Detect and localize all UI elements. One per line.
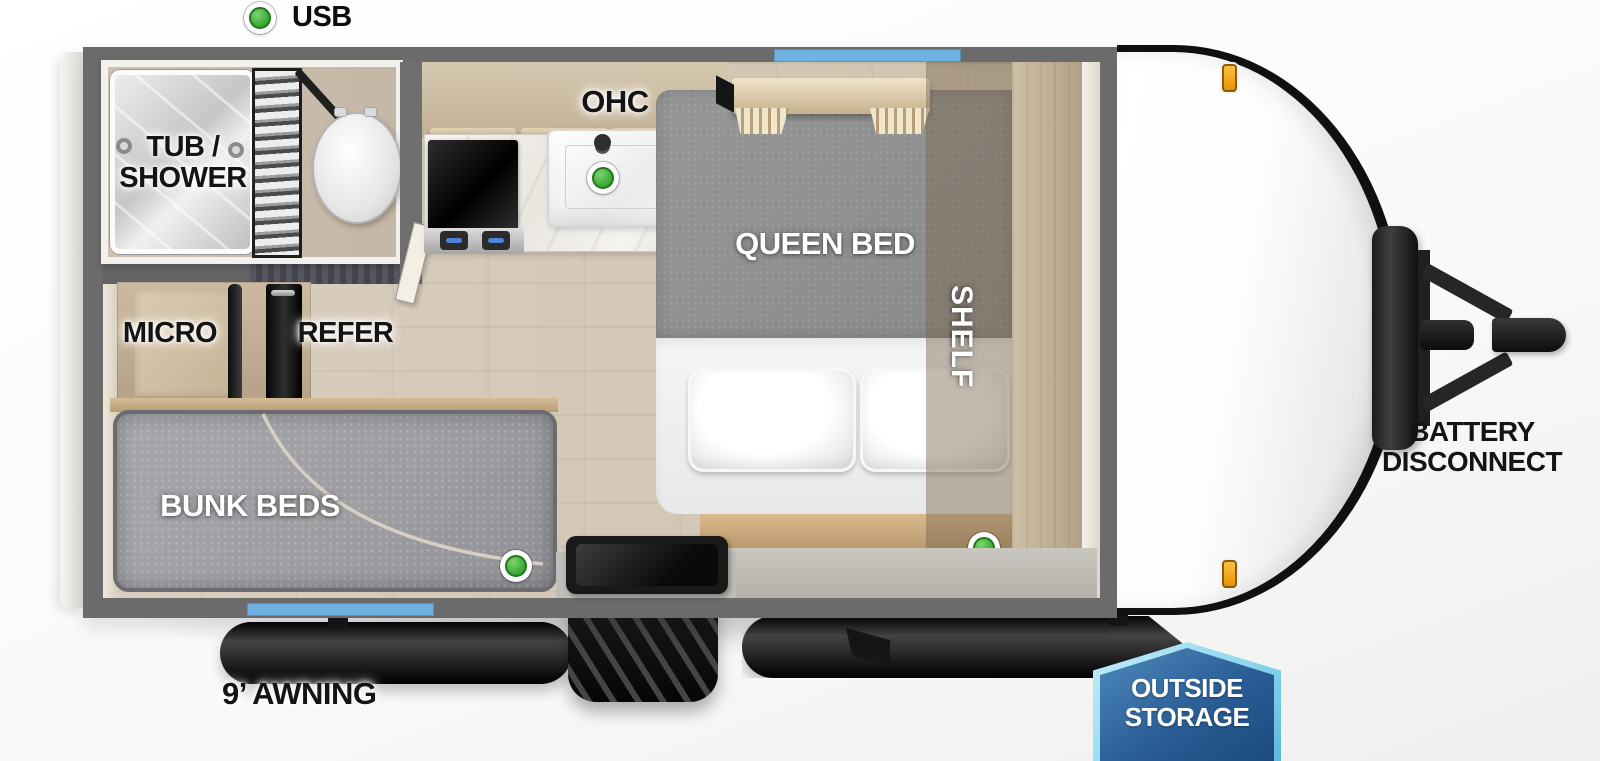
battery-label-line2: DISCONNECT: [1372, 447, 1572, 477]
hitch-coupler: [1492, 318, 1566, 352]
a-frame-arm: [1420, 351, 1513, 412]
micro-label: MICRO: [100, 317, 240, 350]
curtain-pleat: [870, 108, 930, 134]
burner-icon: [482, 231, 510, 250]
usb-indicator-core: [505, 555, 527, 577]
tongue-jack: [1420, 320, 1474, 350]
faucet-icon: [594, 134, 611, 151]
usb-indicator-core: [592, 167, 614, 189]
battery-disconnect-label: BATTERY DISCONNECT: [1372, 417, 1572, 477]
a-frame-arm: [1420, 263, 1513, 324]
interior-entry-step: [566, 536, 728, 594]
window: [247, 603, 434, 616]
awning-roller-tube-left: [220, 622, 572, 684]
marker-light-icon: [1222, 64, 1237, 92]
window: [774, 49, 961, 62]
range-hood: [428, 140, 518, 230]
awning-label: 9’ AWNING: [222, 676, 377, 712]
floorplan-scene: USB 9’ AWNING TUB / SHOWER OHC MI: [0, 0, 1600, 761]
marker-light-icon: [1222, 560, 1237, 588]
toilet-hinge: [334, 107, 347, 117]
bathroom-threshold: [250, 262, 403, 284]
wall-bevel: [1082, 62, 1100, 598]
usb-indicator-icon: [500, 550, 532, 582]
tub-label-line1: TUB /: [104, 132, 262, 163]
toilet: [312, 112, 402, 224]
tub-label-line2: SHOWER: [104, 163, 262, 194]
curtain-pleat: [735, 108, 789, 134]
toilet-hinge: [364, 107, 377, 117]
storage-label-line1: OUTSIDE: [1093, 674, 1281, 703]
storage-label-line2: STORAGE: [1093, 703, 1281, 732]
front-cap: [1117, 52, 1393, 608]
refer-label: REFER: [278, 317, 413, 350]
outside-storage-label: OUTSIDE STORAGE: [1093, 674, 1281, 732]
tub-shower-label: TUB / SHOWER: [104, 132, 262, 194]
usb-indicator-core: [249, 7, 271, 29]
entry-floor-strip: [700, 548, 1097, 598]
shelf-label: SHELF: [944, 252, 978, 422]
usb-legend-label: USB: [292, 0, 352, 34]
usb-indicator-icon: [587, 162, 619, 194]
queen-bed-label: QUEEN BED: [715, 226, 935, 262]
battery-label-line1: BATTERY: [1372, 417, 1572, 447]
rear-cap-edge: [60, 52, 85, 608]
usb-indicator-icon: [244, 2, 276, 34]
pillow: [688, 368, 856, 472]
bunk-beds-label: BUNK BEDS: [140, 488, 360, 524]
wardrobe-panel: [1012, 62, 1084, 598]
burner-icon: [440, 231, 468, 250]
